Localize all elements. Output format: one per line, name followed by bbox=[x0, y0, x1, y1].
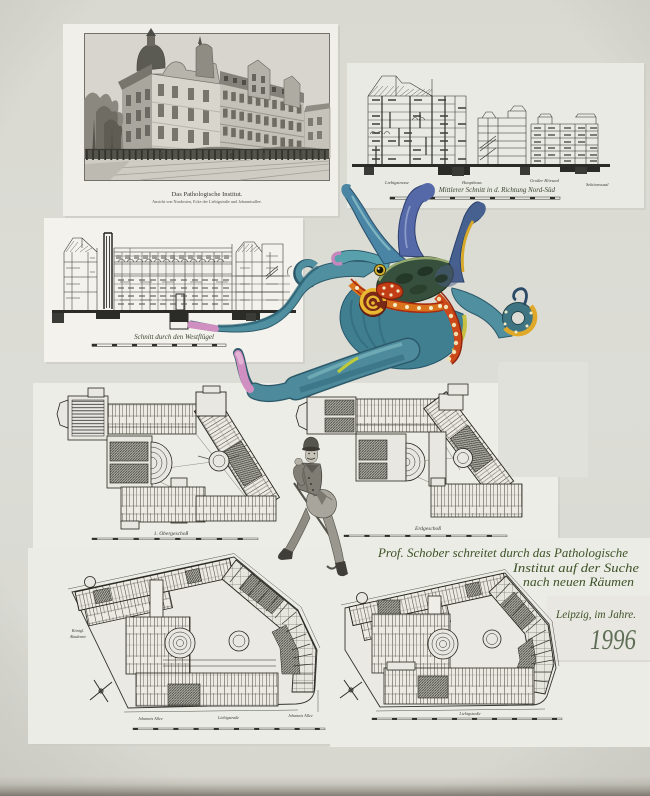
svg-text:Liebigstraße: Liebigstraße bbox=[458, 711, 480, 716]
svg-text:Liebigstraße: Liebigstraße bbox=[217, 715, 239, 720]
svg-text:Leipzig, im Jahre.: Leipzig, im Jahre. bbox=[555, 607, 636, 621]
svg-text:Sektionssaal: Sektionssaal bbox=[586, 182, 609, 187]
svg-text:Haupthaus: Haupthaus bbox=[461, 180, 482, 185]
svg-text:Johannis Allee: Johannis Allee bbox=[138, 716, 163, 721]
svg-text:Königl.: Königl. bbox=[71, 628, 84, 633]
svg-text:1. Obergeschoß: 1. Obergeschoß bbox=[154, 530, 189, 537]
svg-text:Akademie: Akademie bbox=[69, 634, 87, 639]
svg-text:Schnitt durch den Westflügel: Schnitt durch den Westflügel bbox=[134, 333, 214, 341]
svg-text:nach neuen Räumen: nach neuen Räumen bbox=[523, 574, 634, 589]
svg-text:Das Pathologische Institut.: Das Pathologische Institut. bbox=[172, 191, 243, 198]
svg-text:Institut auf der Suche: Institut auf der Suche bbox=[512, 560, 639, 575]
svg-text:Erdgeschoß: Erdgeschoß bbox=[414, 525, 441, 532]
svg-text:Großer Hörsaal: Großer Hörsaal bbox=[530, 178, 560, 183]
svg-text:Johannis Allee: Johannis Allee bbox=[288, 713, 313, 718]
svg-text:1996: 1996 bbox=[590, 625, 636, 656]
svg-text:Liebigstrasse: Liebigstrasse bbox=[384, 180, 409, 185]
svg-text:Prof. Schober schreitet durch: Prof. Schober schreitet durch das Pathol… bbox=[377, 545, 628, 560]
svg-text:Mittlerer Schnitt in d. Richtu: Mittlerer Schnitt in d. Richtung Nord-Sü… bbox=[438, 186, 556, 194]
